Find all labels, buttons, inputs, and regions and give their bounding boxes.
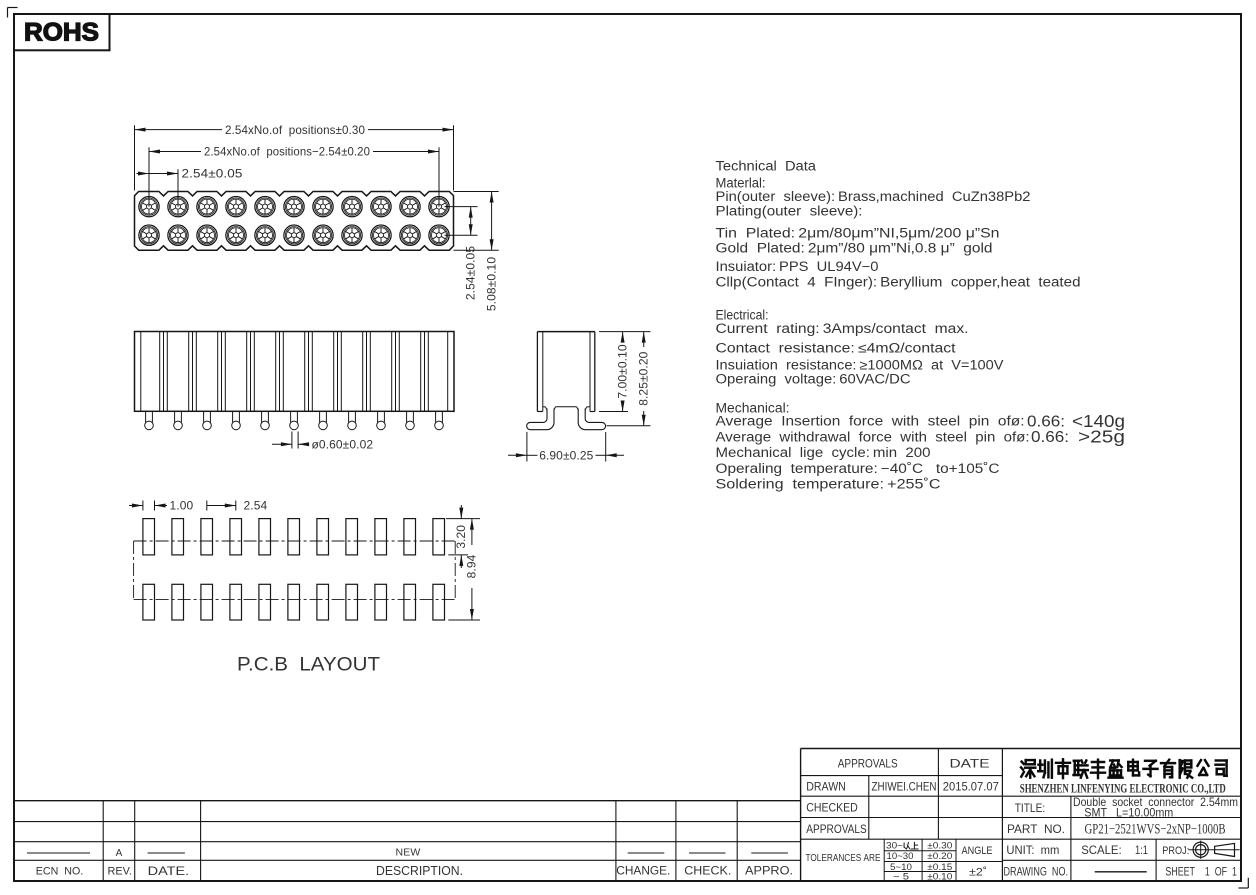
svg-text:1.00: 1.00 <box>170 499 194 513</box>
svg-text:>25g: >25g <box>1078 426 1125 446</box>
svg-text:SHEET 1 OF 1: SHEET 1 OF 1 <box>1165 866 1237 878</box>
svg-text:TITLE:: TITLE: <box>1015 801 1045 815</box>
svg-text:ø0.60±0.02: ø0.60±0.02 <box>312 438 374 452</box>
svg-text:PROJ:: PROJ: <box>1162 845 1189 857</box>
svg-text:7.00±0.10: 7.00±0.10 <box>616 344 630 398</box>
svg-text:±0.10: ±0.10 <box>927 871 952 881</box>
svg-text:5.08±0.10: 5.08±0.10 <box>485 257 499 311</box>
svg-text:CHECK.: CHECK. <box>684 866 731 878</box>
svg-text:P.C.B LAYOUT: P.C.B LAYOUT <box>237 654 380 676</box>
svg-text:APPROVALS: APPROVALS <box>806 822 867 836</box>
svg-text:Technical Data: Technical Data <box>716 158 817 173</box>
svg-text:0.66:: 0.66: <box>1027 413 1065 430</box>
svg-text:REV.: REV. <box>107 866 132 878</box>
svg-text:UNIT: mm: UNIT: mm <box>1006 843 1059 857</box>
svg-text:A: A <box>116 848 123 859</box>
svg-text:ECN NO.: ECN NO. <box>36 866 84 878</box>
svg-text:6.90±0.25: 6.90±0.25 <box>539 449 593 463</box>
svg-text:APPRO.: APPRO. <box>745 866 793 878</box>
svg-text:Gold Plated: 2μm”/80 μm”Ni,0.: Gold Plated: 2μm”/80 μm”Ni,0.8 μ” gold <box>716 240 993 255</box>
svg-text:Plating(outer sleeve):: Plating(outer sleeve): <box>716 204 863 219</box>
svg-text:SHENZHEN LINFENYING ELECTRONIC: SHENZHEN LINFENYING ELECTRONIC CO.,LTD <box>1020 782 1226 796</box>
svg-text:8.25±0.20: 8.25±0.20 <box>637 351 651 405</box>
svg-text:5~10: 5~10 <box>890 862 912 872</box>
svg-text:±0.20: ±0.20 <box>927 851 952 861</box>
svg-text:DRAWING NO.: DRAWING NO. <box>1004 866 1069 878</box>
svg-text:2.54±0.05: 2.54±0.05 <box>182 167 243 181</box>
svg-text:ROHS: ROHS <box>24 19 99 47</box>
svg-text:2015.07.07: 2015.07.07 <box>943 782 999 794</box>
svg-text:1:1: 1:1 <box>1135 843 1148 857</box>
svg-text:Insuiator: PPS UL94V−0: Insuiator: PPS UL94V−0 <box>716 259 879 274</box>
svg-text:CHANGE.: CHANGE. <box>616 866 670 878</box>
svg-text:ANGLE: ANGLE <box>962 845 993 857</box>
svg-text:Insuiation resistance: ≥1000M: Insuiation resistance: ≥1000MΩ at V=100V <box>716 358 1004 373</box>
svg-text:Operaling temperature: −40˚C: Operaling temperature: −40˚C to+105˚C <box>716 461 1000 476</box>
svg-text:2.54: 2.54 <box>244 499 268 513</box>
svg-text:DESCRIPTION.: DESCRIPTION. <box>376 864 463 878</box>
svg-text:Average withdrawal force wi: Average withdrawal force with steel pin … <box>716 429 1030 444</box>
svg-text:8.94: 8.94 <box>465 554 479 578</box>
svg-text:Pin(outer sleeve): Brass,mach: Pin(outer sleeve): Brass,machined CuZn38… <box>716 189 1031 204</box>
svg-text:Cllp(Contact 4 FInger): Bery: Cllp(Contact 4 FInger): Beryllium copper… <box>716 274 1081 289</box>
svg-text:Operaing voltage: 60VAC/DC: Operaing voltage: 60VAC/DC <box>716 372 911 387</box>
svg-text:2.54±0.05: 2.54±0.05 <box>464 246 478 300</box>
svg-text:Current rating: 3Amps/contact: Current rating: 3Amps/contact max. <box>716 321 969 336</box>
svg-text:SCALE:: SCALE: <box>1081 843 1122 857</box>
svg-text:±0.30: ±0.30 <box>927 841 952 851</box>
svg-text:NEW: NEW <box>395 847 420 859</box>
svg-text:PART NO.: PART NO. <box>1007 822 1065 836</box>
svg-text:Contact resistance: ≤4mΩ/cont: Contact resistance: ≤4mΩ/contact <box>716 341 956 356</box>
svg-text:±2˚: ±2˚ <box>969 867 987 879</box>
svg-text:SMT L=10.00mm: SMT L=10.00mm <box>1084 806 1173 819</box>
svg-text:Average Insertion force wit: Average Insertion force with steel pin o… <box>716 414 1025 429</box>
svg-text:2.54xNo.of positions−2.54±0.2: 2.54xNo.of positions−2.54±0.20 <box>204 145 370 159</box>
svg-text:ZHIWEI.CHEN: ZHIWEI.CHEN <box>872 782 937 794</box>
svg-text:30~: 30~ <box>886 841 903 851</box>
svg-text:DRAWN: DRAWN <box>806 780 846 794</box>
svg-text:Mechanical lige cycle: min: Mechanical lige cycle: min 200 <box>716 445 931 460</box>
svg-text:DATE.: DATE. <box>148 864 190 878</box>
svg-text:Soldering temperature: +255˚C: Soldering temperature: +255˚C <box>716 476 941 491</box>
svg-text:±0.15: ±0.15 <box>927 862 952 872</box>
svg-text:TOLERANCES ARE: TOLERANCES ARE <box>806 853 881 864</box>
svg-text:DATE: DATE <box>950 756 990 770</box>
svg-text:GP21−2521WVS−2xNP−1000B: GP21−2521WVS−2xNP−1000B <box>1085 821 1226 837</box>
svg-text:CHECKED: CHECKED <box>806 801 858 815</box>
svg-text:~ 5: ~ 5 <box>893 871 909 881</box>
svg-text:APPROVALS: APPROVALS <box>838 756 898 770</box>
svg-text:10~30: 10~30 <box>887 851 914 861</box>
svg-text:0.66:: 0.66: <box>1031 429 1069 446</box>
svg-text:3.20: 3.20 <box>454 525 468 549</box>
svg-text:2.54xNo.of positions±0.30: 2.54xNo.of positions±0.30 <box>225 123 365 137</box>
svg-text:Tin Plated: 2μm/80μm”NI,5μm/2: Tin Plated: 2μm/80μm”NI,5μm/200 μ”Sn <box>716 226 1000 241</box>
